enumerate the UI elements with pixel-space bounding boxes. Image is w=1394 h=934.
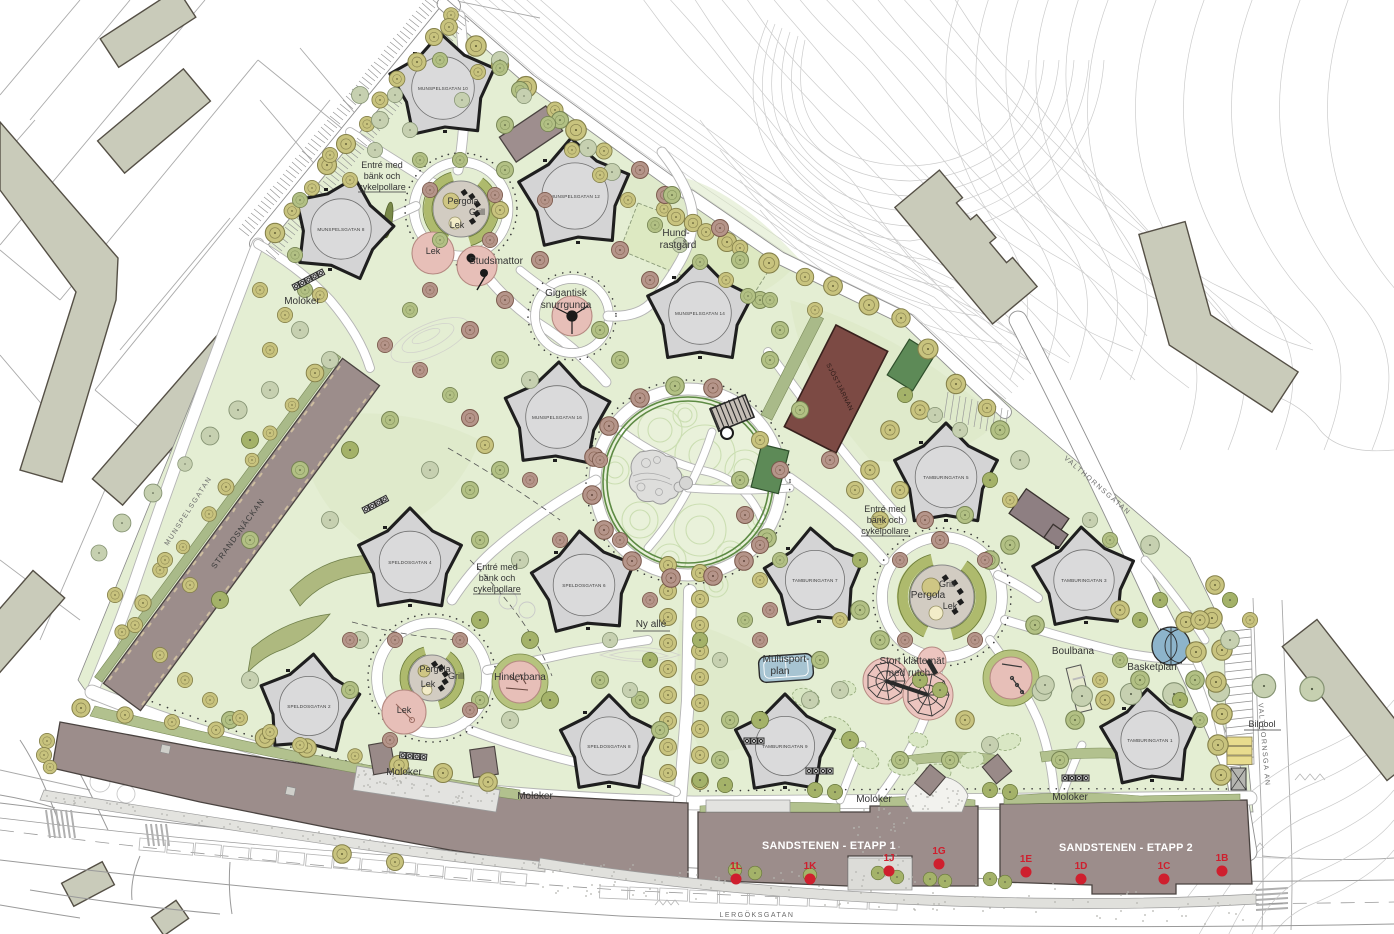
svg-text:SANDSTENEN - ETAPP 2: SANDSTENEN - ETAPP 2 — [1059, 842, 1193, 854]
svg-text:Pergola: Pergola — [419, 664, 450, 674]
svg-text:Entré med: Entré med — [864, 504, 906, 514]
svg-text:Gigantisk: Gigantisk — [545, 288, 588, 299]
svg-text:bänk och: bänk och — [867, 515, 904, 525]
svg-text:Studsmattor: Studsmattor — [469, 256, 524, 267]
svg-text:Hund-: Hund- — [662, 228, 689, 239]
svg-text:TAMBURINGATAN 7: TAMBURINGATAN 7 — [792, 578, 838, 583]
svg-text:1L: 1L — [730, 861, 742, 872]
svg-text:1D: 1D — [1075, 861, 1088, 872]
svg-text:TAMBURINGATAN 1: TAMBURINGATAN 1 — [1127, 738, 1173, 743]
svg-text:1C: 1C — [1158, 861, 1171, 872]
svg-text:Moloker: Moloker — [1052, 792, 1088, 803]
svg-text:1E: 1E — [1020, 854, 1033, 865]
svg-text:1J: 1J — [883, 853, 894, 864]
svg-text:Basketplan: Basketplan — [1127, 662, 1176, 673]
svg-text:rastgård: rastgård — [660, 239, 697, 251]
svg-text:TAMBURINGATAN 5: TAMBURINGATAN 5 — [923, 475, 969, 480]
svg-text:bänk och: bänk och — [479, 573, 516, 583]
svg-text:med rutch: med rutch — [886, 668, 930, 679]
svg-text:SPELDOSGATAN 6: SPELDOSGATAN 6 — [562, 583, 606, 588]
svg-text:Multisport-: Multisport- — [763, 654, 810, 665]
svg-text:MUNSPELSGATAN 10: MUNSPELSGATAN 10 — [418, 86, 468, 91]
svg-text:cykelpollare: cykelpollare — [861, 526, 909, 536]
svg-text:Lek: Lek — [397, 705, 412, 715]
svg-text:SPELDOSGATAN 4: SPELDOSGATAN 4 — [388, 560, 432, 565]
svg-text:SPELDOSGATAN 2: SPELDOSGATAN 2 — [287, 704, 331, 709]
svg-text:Moloker: Moloker — [517, 791, 553, 802]
svg-text:SPELDOSGATAN 8: SPELDOSGATAN 8 — [587, 744, 631, 749]
svg-text:LERGÖKSGATAN: LERGÖKSGATAN — [720, 911, 795, 919]
svg-text:SANDSTENEN - ETAPP 1: SANDSTENEN - ETAPP 1 — [762, 840, 896, 852]
svg-text:Stort klätternät: Stort klätternät — [879, 656, 944, 667]
svg-text:MUNSPELSGATAN 14: MUNSPELSGATAN 14 — [675, 311, 725, 316]
svg-text:TAMBURINGATAN 9: TAMBURINGATAN 9 — [762, 744, 808, 749]
svg-text:Grill: Grill — [469, 207, 485, 217]
svg-text:Ny allé: Ny allé — [636, 619, 667, 630]
svg-text:1G: 1G — [932, 846, 946, 857]
svg-text:MUNSPELSGATAN 8: MUNSPELSGATAN 8 — [317, 227, 364, 232]
svg-text:Lek: Lek — [421, 679, 436, 689]
svg-text:cykelpollare: cykelpollare — [473, 584, 521, 594]
svg-text:bänk och: bänk och — [364, 171, 401, 181]
svg-text:MUNSPELSGATAN 12: MUNSPELSGATAN 12 — [550, 194, 600, 199]
svg-text:Lek: Lek — [943, 601, 958, 611]
svg-text:Lek: Lek — [426, 246, 441, 256]
svg-text:TAMBURINGATAN 3: TAMBURINGATAN 3 — [1061, 578, 1107, 583]
svg-text:Entré med: Entré med — [361, 160, 403, 170]
svg-text:1K: 1K — [804, 861, 818, 872]
svg-text:plan: plan — [771, 666, 790, 677]
svg-text:Grill: Grill — [939, 579, 955, 589]
svg-text:Grill: Grill — [448, 671, 464, 681]
svg-text:Boulbana: Boulbana — [1052, 646, 1095, 657]
svg-text:Pergola: Pergola — [447, 196, 478, 206]
svg-text:MUNSPELSGATAN 16: MUNSPELSGATAN 16 — [532, 415, 582, 420]
svg-text:Moloker: Moloker — [284, 296, 320, 307]
svg-text:Hinderbana: Hinderbana — [494, 672, 546, 683]
svg-text:snurrgunga: snurrgunga — [541, 300, 592, 311]
svg-text:Lek: Lek — [450, 220, 465, 230]
svg-text:Entré med: Entré med — [476, 562, 518, 572]
svg-text:Moloker: Moloker — [386, 767, 422, 778]
svg-text:Moloker: Moloker — [856, 794, 892, 805]
svg-text:1B: 1B — [1216, 853, 1229, 864]
svg-text:Pergola: Pergola — [911, 590, 946, 601]
svg-text:cykelpollare: cykelpollare — [358, 182, 406, 192]
